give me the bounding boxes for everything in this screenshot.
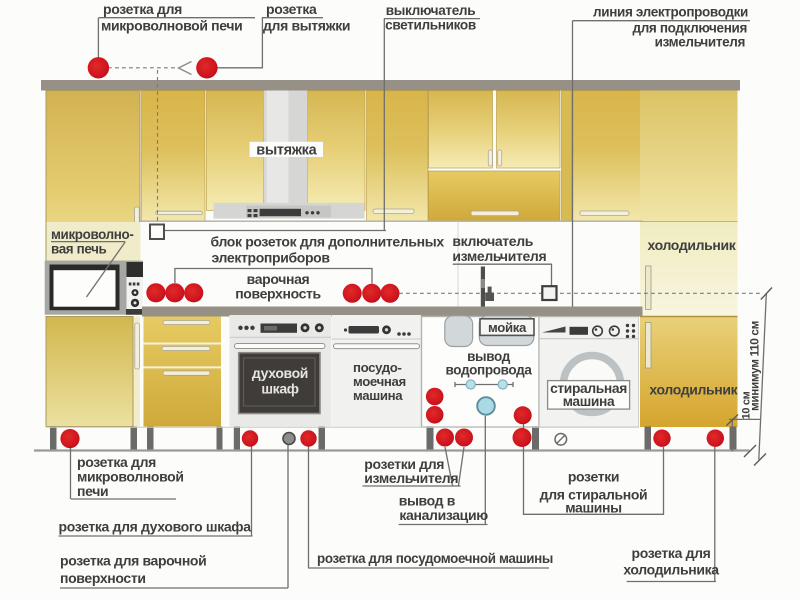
svg-text:для подключения: для подключения <box>632 21 747 36</box>
svg-text:холодильника: холодильника <box>623 562 719 578</box>
svg-text:машины: машины <box>565 500 622 516</box>
svg-text:10 см: 10 см <box>741 391 753 419</box>
svg-text:водопровода: водопровода <box>445 362 532 377</box>
svg-text:шкаф: шкаф <box>261 381 298 397</box>
svg-text:микроволно-: микроволно- <box>51 227 133 242</box>
svg-text:мойка: мойка <box>488 320 527 335</box>
svg-text:розетка для посудомоечной маши: розетка для посудомоечной машины <box>317 551 553 566</box>
svg-text:канализацию: канализацию <box>399 507 488 523</box>
svg-text:машина: машина <box>353 388 403 403</box>
svg-text:холодильник: холодильник <box>649 382 738 398</box>
svg-text:розетка: розетка <box>266 1 317 17</box>
svg-text:машина: машина <box>563 394 615 409</box>
svg-text:розетки: розетки <box>568 469 619 485</box>
svg-text:измельчителя: измельчителя <box>655 35 745 50</box>
svg-text:измельчителя: измельчителя <box>452 248 546 264</box>
svg-text:розетка для варочной: розетка для варочной <box>60 553 206 569</box>
svg-text:включатель: включатель <box>452 233 533 249</box>
svg-text:розетка для духового шкафа: розетка для духового шкафа <box>59 519 252 535</box>
svg-text:духовой: духовой <box>252 365 308 381</box>
svg-text:блок розеток для дополнительны: блок розеток для дополнительных <box>211 234 445 250</box>
svg-text:светильников: светильников <box>385 17 476 32</box>
svg-text:линия электропроводки: линия электропроводки <box>593 5 748 20</box>
svg-text:холодильник: холодильник <box>648 237 737 253</box>
svg-text:вая печь: вая печь <box>51 242 107 257</box>
svg-text:розетка для: розетка для <box>103 1 182 17</box>
svg-text:поверхности: поверхности <box>60 570 146 586</box>
svg-text:измельчителя: измельчителя <box>364 470 458 486</box>
svg-text:печи: печи <box>77 483 108 499</box>
svg-text:посудо-: посудо- <box>353 360 402 375</box>
svg-text:для вытяжки: для вытяжки <box>263 18 350 34</box>
svg-text:поверхность: поверхность <box>235 286 321 302</box>
svg-text:моечная: моечная <box>353 374 406 389</box>
svg-text:розетка для: розетка для <box>632 545 711 561</box>
svg-text:вытяжка: вытяжка <box>256 142 317 158</box>
svg-text:выключатель: выключатель <box>386 3 475 18</box>
svg-text:микроволновой печи: микроволновой печи <box>101 18 242 34</box>
svg-text:электроприборов: электроприборов <box>212 249 331 265</box>
